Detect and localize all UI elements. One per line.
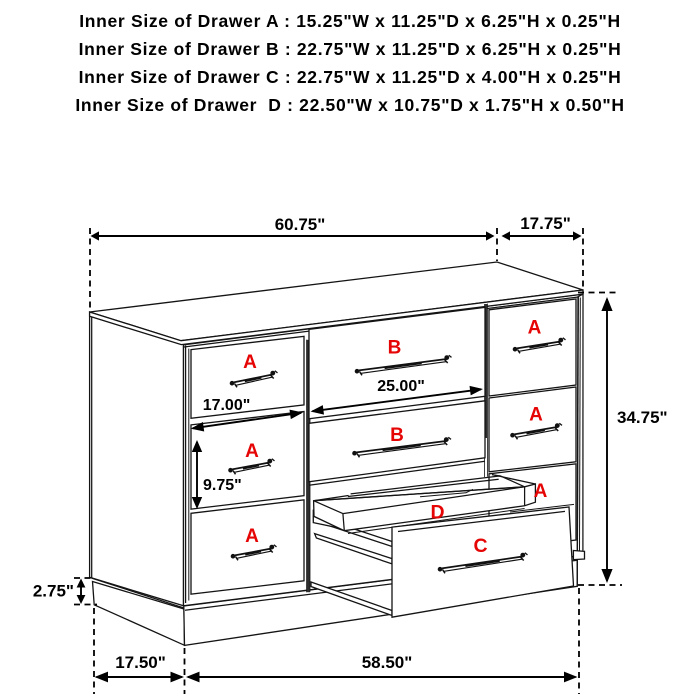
svg-text:60.75": 60.75" [275,215,326,234]
svg-text:C: C [473,535,487,557]
svg-text:A: A [529,405,543,426]
svg-text:17.00": 17.00" [203,397,251,414]
svg-text:2.75": 2.75" [33,582,74,601]
svg-text:17.75": 17.75" [520,214,571,233]
svg-text:25.00": 25.00" [377,378,425,395]
svg-text:A: A [245,441,259,462]
svg-text:A: A [245,526,259,547]
svg-text:A: A [243,352,257,373]
svg-text:9.75": 9.75" [203,477,242,494]
svg-text:17.50": 17.50" [115,653,166,672]
svg-text:B: B [388,338,402,359]
svg-text:58.50": 58.50" [362,653,413,672]
svg-text:A: A [528,318,542,339]
svg-text:D: D [430,502,444,524]
svg-text:A: A [534,481,548,502]
svg-text:B: B [390,425,404,446]
svg-text:34.75": 34.75" [617,408,668,427]
